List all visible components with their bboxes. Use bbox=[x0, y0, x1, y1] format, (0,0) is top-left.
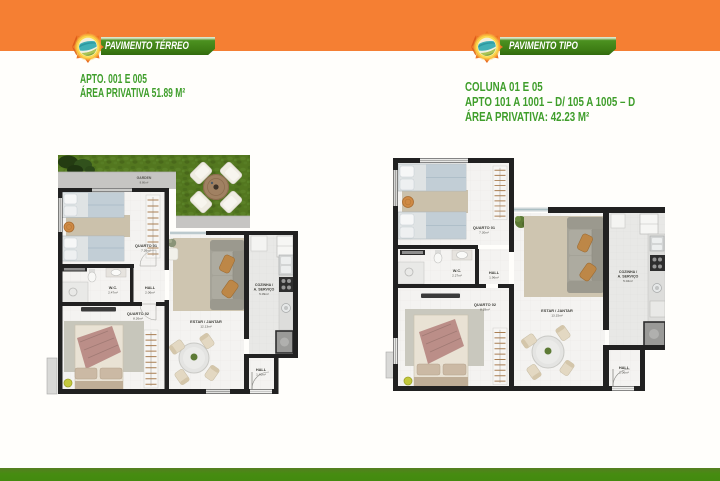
svg-text:1.96m²: 1.96m² bbox=[489, 276, 499, 280]
svg-text:12.13m²: 12.13m² bbox=[200, 325, 211, 329]
svg-text:13.15m²: 13.15m² bbox=[551, 314, 562, 318]
svg-text:2.06m²: 2.06m² bbox=[145, 291, 155, 295]
svg-text:W.C.: W.C. bbox=[109, 285, 117, 290]
svg-text:QUARTO 02: QUARTO 02 bbox=[127, 311, 150, 316]
svg-text:A. SERVIÇO: A. SERVIÇO bbox=[618, 275, 639, 279]
svg-text:QUARTO 01: QUARTO 01 bbox=[473, 225, 496, 230]
svg-text:1.40m²: 1.40m² bbox=[256, 373, 266, 377]
svg-text:QUARTO 01: QUARTO 01 bbox=[135, 243, 158, 248]
svg-text:HALL: HALL bbox=[489, 270, 500, 275]
svg-text:ESTAR / JANTAR: ESTAR / JANTAR bbox=[190, 319, 222, 324]
svg-text:2.06m²: 2.06m² bbox=[619, 371, 629, 375]
svg-text:7.26m²: 7.26m² bbox=[141, 249, 151, 253]
svg-text:2.47m²: 2.47m² bbox=[108, 291, 118, 295]
svg-text:8.86m²: 8.86m² bbox=[140, 181, 149, 185]
svg-text:HALL: HALL bbox=[256, 367, 267, 372]
svg-text:ESTAR / JANTAR: ESTAR / JANTAR bbox=[541, 308, 573, 313]
svg-text:5.09m²: 5.09m² bbox=[259, 292, 269, 296]
svg-text:GARDEN: GARDEN bbox=[137, 176, 152, 180]
svg-text:W.C.: W.C. bbox=[453, 268, 461, 273]
svg-text:COZINHA /: COZINHA / bbox=[255, 283, 273, 287]
svg-text:8.26m²: 8.26m² bbox=[133, 317, 143, 321]
svg-text:5.04m²: 5.04m² bbox=[623, 279, 633, 283]
svg-text:7.30m²: 7.30m² bbox=[479, 231, 489, 235]
svg-text:8.28m²: 8.28m² bbox=[480, 308, 490, 312]
svg-text:COZINHA /: COZINHA / bbox=[619, 270, 637, 274]
svg-text:A. SERVIÇO: A. SERVIÇO bbox=[254, 288, 275, 292]
svg-text:HALL: HALL bbox=[145, 285, 156, 290]
svg-text:2.27m²: 2.27m² bbox=[452, 274, 462, 278]
svg-text:QUARTO 02: QUARTO 02 bbox=[474, 302, 497, 307]
